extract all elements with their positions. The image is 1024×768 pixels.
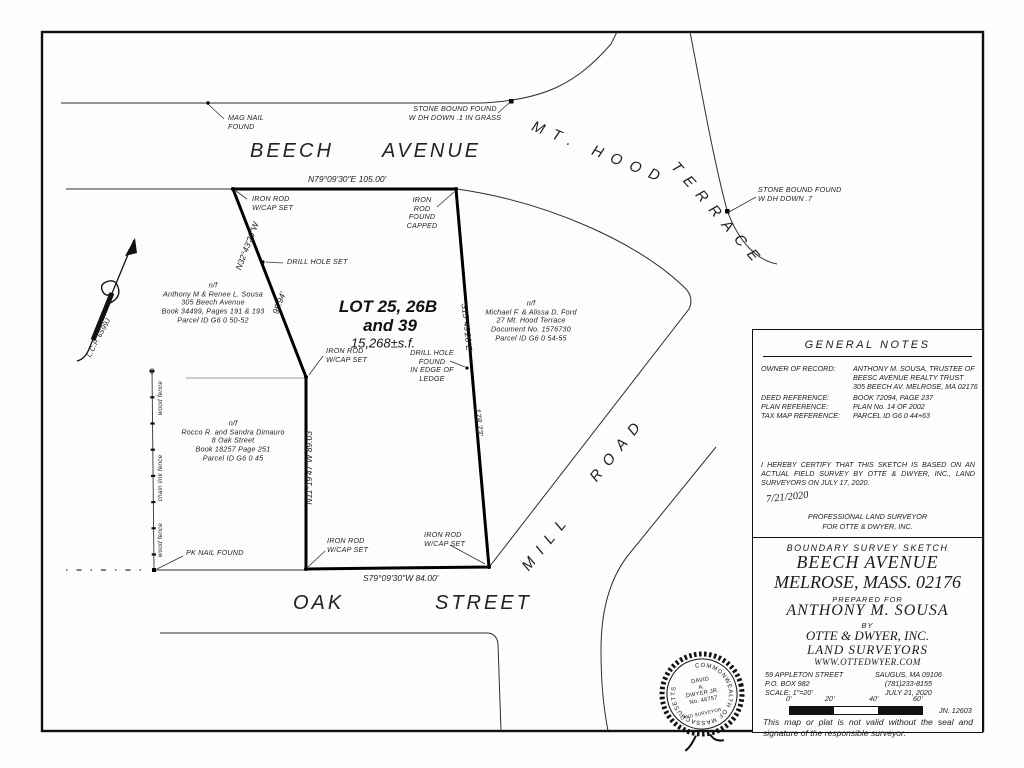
drill-hole-set-label: DRILL HOLE SET xyxy=(287,258,348,267)
street-label-street: STREET xyxy=(435,592,532,615)
certification-statement: I HEREBY CERTIFY THAT THIS SKETCH IS BAS… xyxy=(761,460,975,487)
plan-reference-label: PLAN REFERENCE: xyxy=(761,402,853,411)
bearing-beech-line: N79°09'30"E 105.00' xyxy=(308,174,386,184)
job-number: JN. 12603 xyxy=(939,706,972,715)
abutter-sousa: n/f Anthony M & Renee L. Sousa 305 Beech… xyxy=(162,281,265,324)
lot-name-line2: and 39 xyxy=(363,316,417,336)
title-website: WWW.OTTEDWYER.COM xyxy=(753,657,982,667)
surveyor-role-line1: PROFESSIONAL LAND SURVEYOR xyxy=(753,512,982,521)
title-city: MELROSE, MASS. 02176 xyxy=(753,572,982,593)
scale-tick-40: 40' xyxy=(869,696,879,703)
general-notes-title-rule xyxy=(763,356,972,357)
owner-of-record-value: ANTHONY M. SOUSA, TRUSTEE OF BEESC AVENU… xyxy=(853,364,979,391)
abutter-dimauro: n/f Rocco R. and Sandra Dimauro 8 Oak St… xyxy=(181,419,284,462)
surveyor-role-line2: FOR OTTE & DWYER, INC. xyxy=(753,522,982,531)
bearing-oak-line: S79°09'30"W 84.00' xyxy=(363,573,438,583)
street-label-beech: BEECH xyxy=(250,140,334,163)
owner-of-record-label: OWNER OF RECORD: xyxy=(761,364,853,373)
north-arrow xyxy=(77,238,137,361)
abutter-ford: n/f Michael F. & Alissa D. Ford 27 Mt. H… xyxy=(485,299,576,342)
lot-area: 15,268±s.f. xyxy=(351,336,415,351)
deed-reference-value: BOOK 72094, PAGE 237 xyxy=(853,393,933,402)
title-block-panel: BOUNDARY SURVEY SKETCH BEECH AVENUE MELR… xyxy=(752,537,983,733)
firm-address-right: SAUGUS, MA 09106 (781)233-8155 JULY 21, … xyxy=(875,670,942,697)
title-street: BEECH AVENUE xyxy=(753,552,982,573)
iron-rod-b-label: IRON ROD FOUND CAPPED xyxy=(405,196,439,231)
deed-reference-label: DEED REFERENCE: xyxy=(761,393,853,402)
scale-tick-0: 0' xyxy=(786,696,792,703)
street-label-oak: OAK xyxy=(293,592,344,615)
scale-tick-60: 60' xyxy=(913,696,923,703)
bearing-west-line: N11°19'47"W 89.03' xyxy=(304,429,314,504)
beech-to-mill-road-line xyxy=(457,189,691,566)
oak-street-south-line xyxy=(160,633,501,731)
scale-bar xyxy=(789,706,923,715)
tax-map-reference-value: PARCEL ID G6 0 44+63 xyxy=(853,411,930,420)
fence-wood-upper-label: wood fence xyxy=(157,381,165,415)
certification-date: 7/21/2020 xyxy=(766,490,810,505)
disclaimer: This map or plat is not valid without th… xyxy=(763,717,973,739)
street-label-avenue: AVENUE xyxy=(382,140,481,163)
drill-hole-found-label: DRILL HOLE FOUND IN EDGE OF LEDGE xyxy=(402,349,462,384)
stone-bound-7-label: STONE BOUND FOUND W DH DOWN .7 xyxy=(758,186,842,203)
pk-nail-label: PK NAIL FOUND xyxy=(186,549,244,558)
title-firm2: LAND SURVEYORS xyxy=(753,642,982,658)
survey-sheet: COMMONWEALTH OF MASSACHUSETTS BEECH AVEN… xyxy=(0,0,1024,768)
general-notes-panel: GENERAL NOTES OWNER OF RECORD: ANTHONY M… xyxy=(752,329,983,539)
tax-map-reference-label: TAX MAP REFERENCE: xyxy=(761,411,853,420)
fence-chain-label: chain link fence xyxy=(157,455,165,502)
fence-line xyxy=(152,370,154,568)
firm-address-left: 59 APPLETON STREET P.O. BOX 982 SCALE: 1… xyxy=(765,670,843,697)
general-notes-title: GENERAL NOTES xyxy=(753,339,982,351)
lot-name-line1: LOT 25, 26B xyxy=(339,297,437,317)
plan-reference-value: PLAN No. 14 OF 2002 xyxy=(853,402,925,411)
title-client: ANTHONY M. SOUSA xyxy=(753,602,982,620)
fence-wood-lower-label: wood fence xyxy=(157,523,165,557)
iron-rod-c-label: IRON ROD W/CAP SET xyxy=(424,531,465,548)
stone-bound-grass-label: STONE BOUND FOUND W DH DOWN .1 IN GRASS xyxy=(405,105,505,122)
iron-rod-d-label: IRON ROD W/CAP SET xyxy=(327,537,368,554)
beech-avenue-north-line xyxy=(61,32,617,103)
mag-nail-label: MAG NAIL FOUND xyxy=(228,114,264,131)
iron-rod-a-label: IRON ROD W/CAP SET xyxy=(252,195,293,212)
scale-tick-20: 20' xyxy=(825,696,835,703)
